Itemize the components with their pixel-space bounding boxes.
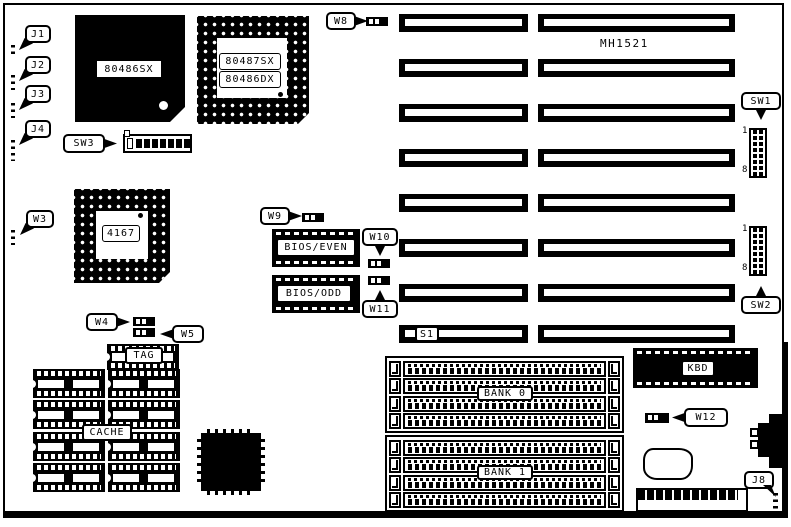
callout-w5: W5 xyxy=(172,325,204,343)
din-pin xyxy=(750,440,759,449)
simm-clip xyxy=(608,457,620,473)
callout-w10: W10 xyxy=(362,228,398,246)
callout-w3-label: W3 xyxy=(33,214,47,225)
expansion-slot xyxy=(538,14,735,32)
expansion-slot xyxy=(538,104,735,122)
callout-w8: W8 xyxy=(326,12,356,30)
dip-switch-sw2 xyxy=(749,226,767,276)
callout-w11: W11 xyxy=(362,300,398,318)
simm-clip xyxy=(608,492,620,508)
callout-w12: W12 xyxy=(684,408,728,427)
keyboard-din-connector xyxy=(769,457,787,468)
jumper-w4 xyxy=(133,317,155,326)
connector-j2 xyxy=(9,71,17,92)
simm-clip xyxy=(389,378,401,394)
callout-j2-label: J2 xyxy=(31,60,45,71)
pin1-dot xyxy=(278,92,283,97)
bank0-label: BANK 0 xyxy=(477,386,533,401)
motherboard-diagram: J1 J2 J3 J4 W3 80486SX 80487SX 80486DX S… xyxy=(0,0,791,527)
cache-chip xyxy=(33,369,105,398)
simm-clip xyxy=(389,457,401,473)
jumper-w12 xyxy=(645,413,669,423)
simm-socket xyxy=(389,440,620,456)
battery-outline xyxy=(643,448,693,480)
callout-sw2: SW2 xyxy=(741,296,781,314)
qfp-chip xyxy=(197,429,265,495)
callout-j4-label: J4 xyxy=(31,124,45,135)
fpu-socket-80487sx xyxy=(197,16,309,124)
bank1-label: BANK 1 xyxy=(477,465,533,480)
cpu-label: 80486SX xyxy=(97,61,161,77)
fpu-label-line1: 80487SX xyxy=(219,53,281,70)
expansion-slot xyxy=(399,59,528,77)
expansion-slot xyxy=(399,104,528,122)
dip-switch-sw3 xyxy=(123,134,192,153)
expansion-slot xyxy=(538,59,735,77)
expansion-slot xyxy=(538,149,735,167)
simm-socket xyxy=(389,492,620,508)
simm-clip xyxy=(608,378,620,394)
simm-bar xyxy=(403,440,606,456)
cache-chip xyxy=(33,463,105,492)
simm-clip xyxy=(389,396,401,412)
callout-j3-label: J3 xyxy=(31,89,45,100)
pin1-dot xyxy=(159,101,168,110)
din-pin xyxy=(750,428,759,437)
cpu-80486sx-chip: 80486SX xyxy=(75,15,185,122)
simm-clip xyxy=(608,475,620,491)
jumper-w11 xyxy=(368,276,390,285)
connector-j1 xyxy=(9,41,17,56)
pin1-dot xyxy=(138,213,143,218)
callout-w5-label: W5 xyxy=(181,329,195,340)
power-connector xyxy=(636,488,748,512)
jumper-w9 xyxy=(302,213,324,222)
slot-s1-label: S1 xyxy=(415,326,439,342)
simm-clip xyxy=(389,475,401,491)
simm-clip xyxy=(608,396,620,412)
fpu-label-line2: 80486DX xyxy=(219,71,281,88)
connector-w3 xyxy=(9,226,17,247)
connector-j3 xyxy=(9,99,17,120)
expansion-slot xyxy=(399,284,528,302)
callout-j4: J4 xyxy=(25,120,51,138)
switch-pin-label: 1 xyxy=(742,224,747,234)
callout-sw3: SW3 xyxy=(63,134,105,153)
expansion-slot xyxy=(399,194,528,212)
callout-sw1-label: SW1 xyxy=(750,96,771,107)
board-model-text: MH1521 xyxy=(600,37,649,50)
callout-w11-label: W11 xyxy=(369,304,390,315)
bios-odd-label: BIOS/ODD xyxy=(276,284,352,303)
callout-j2: J2 xyxy=(25,56,51,74)
simm-clip xyxy=(608,413,620,429)
keyboard-din-connector xyxy=(758,423,787,457)
jumper-w5 xyxy=(133,328,155,337)
kbd-label: KBD xyxy=(681,360,715,377)
cache-chip xyxy=(108,463,180,492)
callout-j8: J8 xyxy=(744,471,774,489)
simm-clip xyxy=(608,361,620,377)
expansion-slot xyxy=(538,194,735,212)
expansion-slot xyxy=(399,239,528,257)
cache-chip xyxy=(108,369,180,398)
callout-w3: W3 xyxy=(26,210,54,228)
expansion-slot xyxy=(538,325,735,343)
simm-bar xyxy=(403,413,606,429)
connector-j4 xyxy=(9,136,17,163)
callout-j1: J1 xyxy=(25,25,51,43)
bios-even-label: BIOS/EVEN xyxy=(276,238,356,257)
simm-clip xyxy=(389,492,401,508)
expansion-slot xyxy=(538,284,735,302)
tag-label: TAG xyxy=(125,347,163,364)
expansion-slot xyxy=(399,149,528,167)
dip-switch-sw1 xyxy=(749,128,767,178)
callout-sw3-label: SW3 xyxy=(73,138,94,149)
simm-socket xyxy=(389,413,620,429)
expansion-slot xyxy=(538,239,735,257)
simm-bar xyxy=(403,361,606,377)
simm-bar xyxy=(403,492,606,508)
callout-w9: W9 xyxy=(260,207,290,225)
chip-4167-label: 4167 xyxy=(102,225,140,242)
callout-w10-label: W10 xyxy=(369,232,390,243)
callout-w12-label: W12 xyxy=(695,412,716,423)
callout-sw1: SW1 xyxy=(741,92,781,110)
expansion-slot xyxy=(399,14,528,32)
switch-pin-label: 8 xyxy=(742,165,747,175)
simm-clip xyxy=(608,440,620,456)
switch-pin-label: 8 xyxy=(742,263,747,273)
cache-label: CACHE xyxy=(82,424,132,441)
simm-clip xyxy=(389,440,401,456)
callout-j1-label: J1 xyxy=(31,29,45,40)
callout-w8-label: W8 xyxy=(334,16,348,27)
switch-pin-label: 1 xyxy=(742,126,747,136)
simm-clip xyxy=(389,413,401,429)
jumper-w8 xyxy=(366,17,388,26)
callout-w4: W4 xyxy=(86,313,118,331)
callout-j3: J3 xyxy=(25,85,51,103)
jumper-w10 xyxy=(368,259,390,268)
callout-w9-label: W9 xyxy=(268,211,282,222)
callout-sw2-label: SW2 xyxy=(750,300,771,311)
simm-clip xyxy=(389,361,401,377)
simm-socket xyxy=(389,361,620,377)
callout-j8-label: J8 xyxy=(752,475,766,486)
callout-w4-label: W4 xyxy=(95,317,109,328)
